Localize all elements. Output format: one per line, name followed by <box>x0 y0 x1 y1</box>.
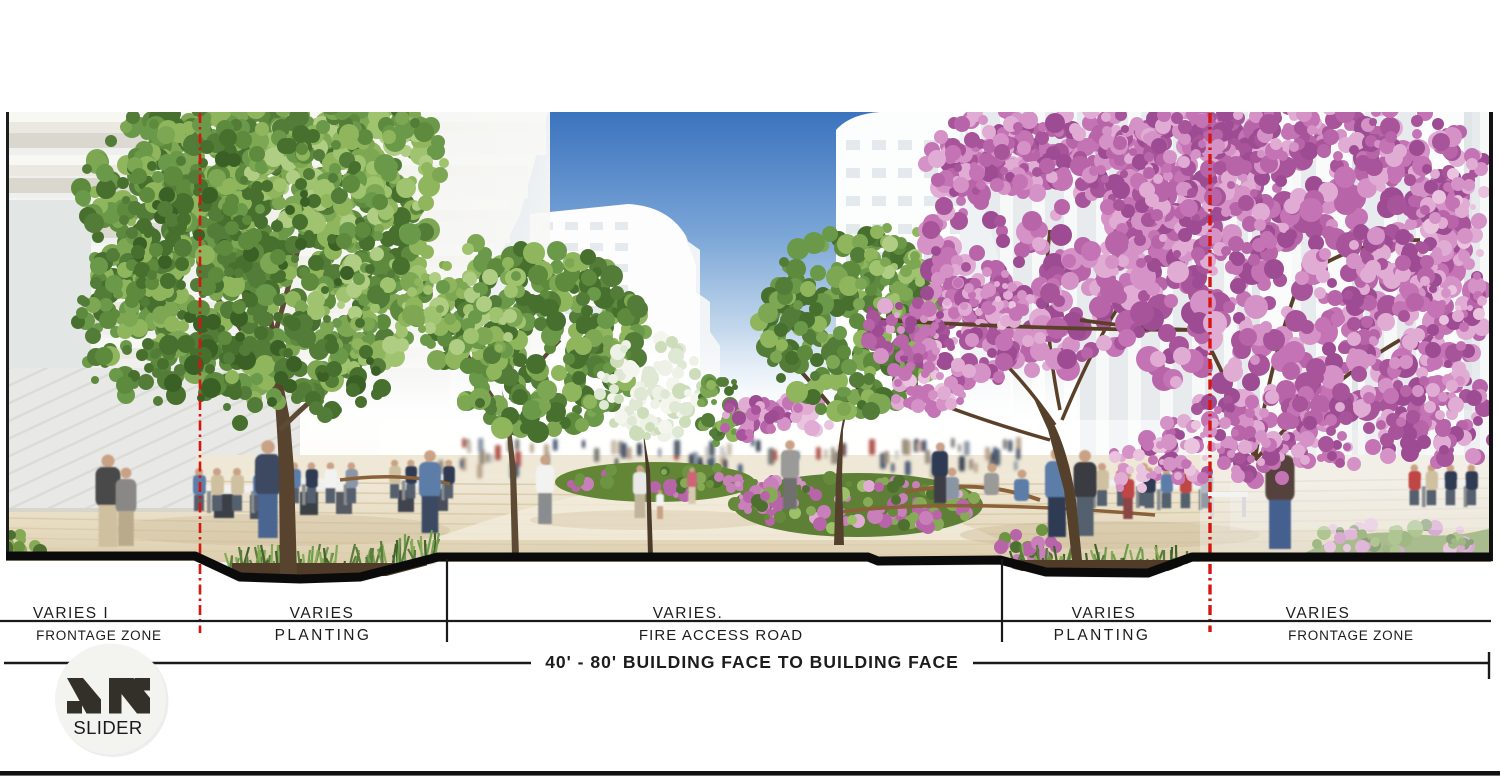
svg-text:FIRE ACCESS ROAD: FIRE ACCESS ROAD <box>639 627 803 644</box>
svg-text:SLIDER: SLIDER <box>73 717 142 738</box>
svg-text:FRONTAGE ZONE: FRONTAGE ZONE <box>36 628 162 643</box>
svg-text:VARIES.: VARIES. <box>653 605 724 622</box>
svg-text:PLANTING: PLANTING <box>275 627 372 644</box>
svg-text:PLANTING: PLANTING <box>1054 627 1151 644</box>
svg-text:VARIES I: VARIES I <box>33 605 109 622</box>
svg-text:VARIES: VARIES <box>290 605 355 622</box>
svg-text:VARIES: VARIES <box>1072 605 1137 622</box>
svg-text:VARIES: VARIES <box>1286 605 1351 622</box>
svg-text:40' - 80' BUILDING FACE TO BU: 40' - 80' BUILDING FACE TO BUILDING FACE <box>545 652 959 672</box>
svg-text:FRONTAGE ZONE: FRONTAGE ZONE <box>1288 628 1414 643</box>
